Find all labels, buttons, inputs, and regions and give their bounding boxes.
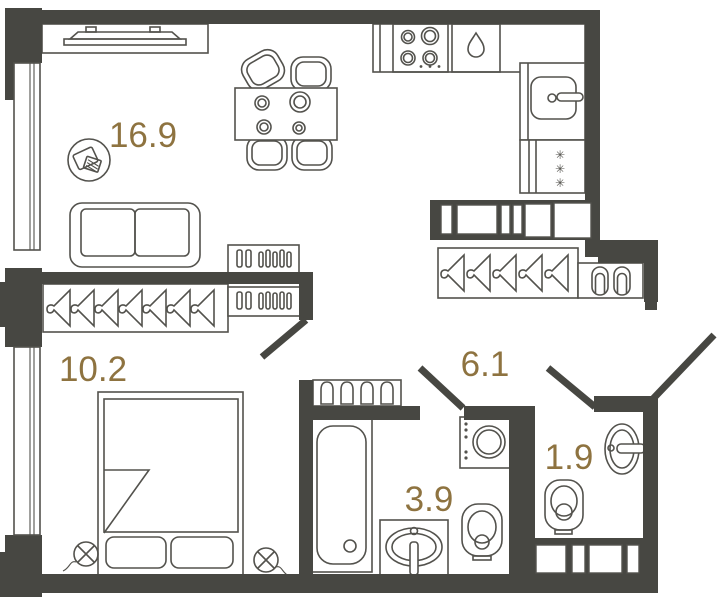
bottle-shelf: [313, 380, 401, 406]
window-living: [14, 63, 40, 250]
room-label-hallway: 6.1: [461, 345, 510, 384]
room-label-wc: 1.9: [545, 438, 594, 477]
dining-table: [235, 88, 337, 140]
chair: [292, 136, 332, 170]
window-bedroom: [14, 347, 40, 535]
vanity-sink: [380, 520, 448, 575]
washing-machine: [460, 417, 510, 468]
room-label-living: 16.9: [109, 116, 177, 155]
shoe-cabinet: [578, 263, 643, 298]
bedroom-dresser: [228, 287, 300, 316]
chair: [247, 136, 287, 170]
sideboard-living: [228, 245, 299, 273]
snowflake-icon: ✳: [555, 162, 565, 176]
sofa: [70, 203, 200, 267]
hallway-wardrobe: [438, 248, 578, 298]
tv-unit: [42, 24, 208, 53]
floor-plan-svg: ✳ ✳ ✳: [0, 0, 720, 597]
chair: [291, 57, 331, 91]
room-label-bathroom: 3.9: [405, 480, 454, 519]
bedroom-wardrobe: [43, 284, 228, 332]
fridge-freezer: ✳ ✳ ✳: [520, 140, 585, 193]
room-label-bedroom: 10.2: [59, 350, 127, 389]
snowflake-icon: ✳: [555, 176, 565, 190]
snowflake-icon: ✳: [555, 148, 565, 162]
